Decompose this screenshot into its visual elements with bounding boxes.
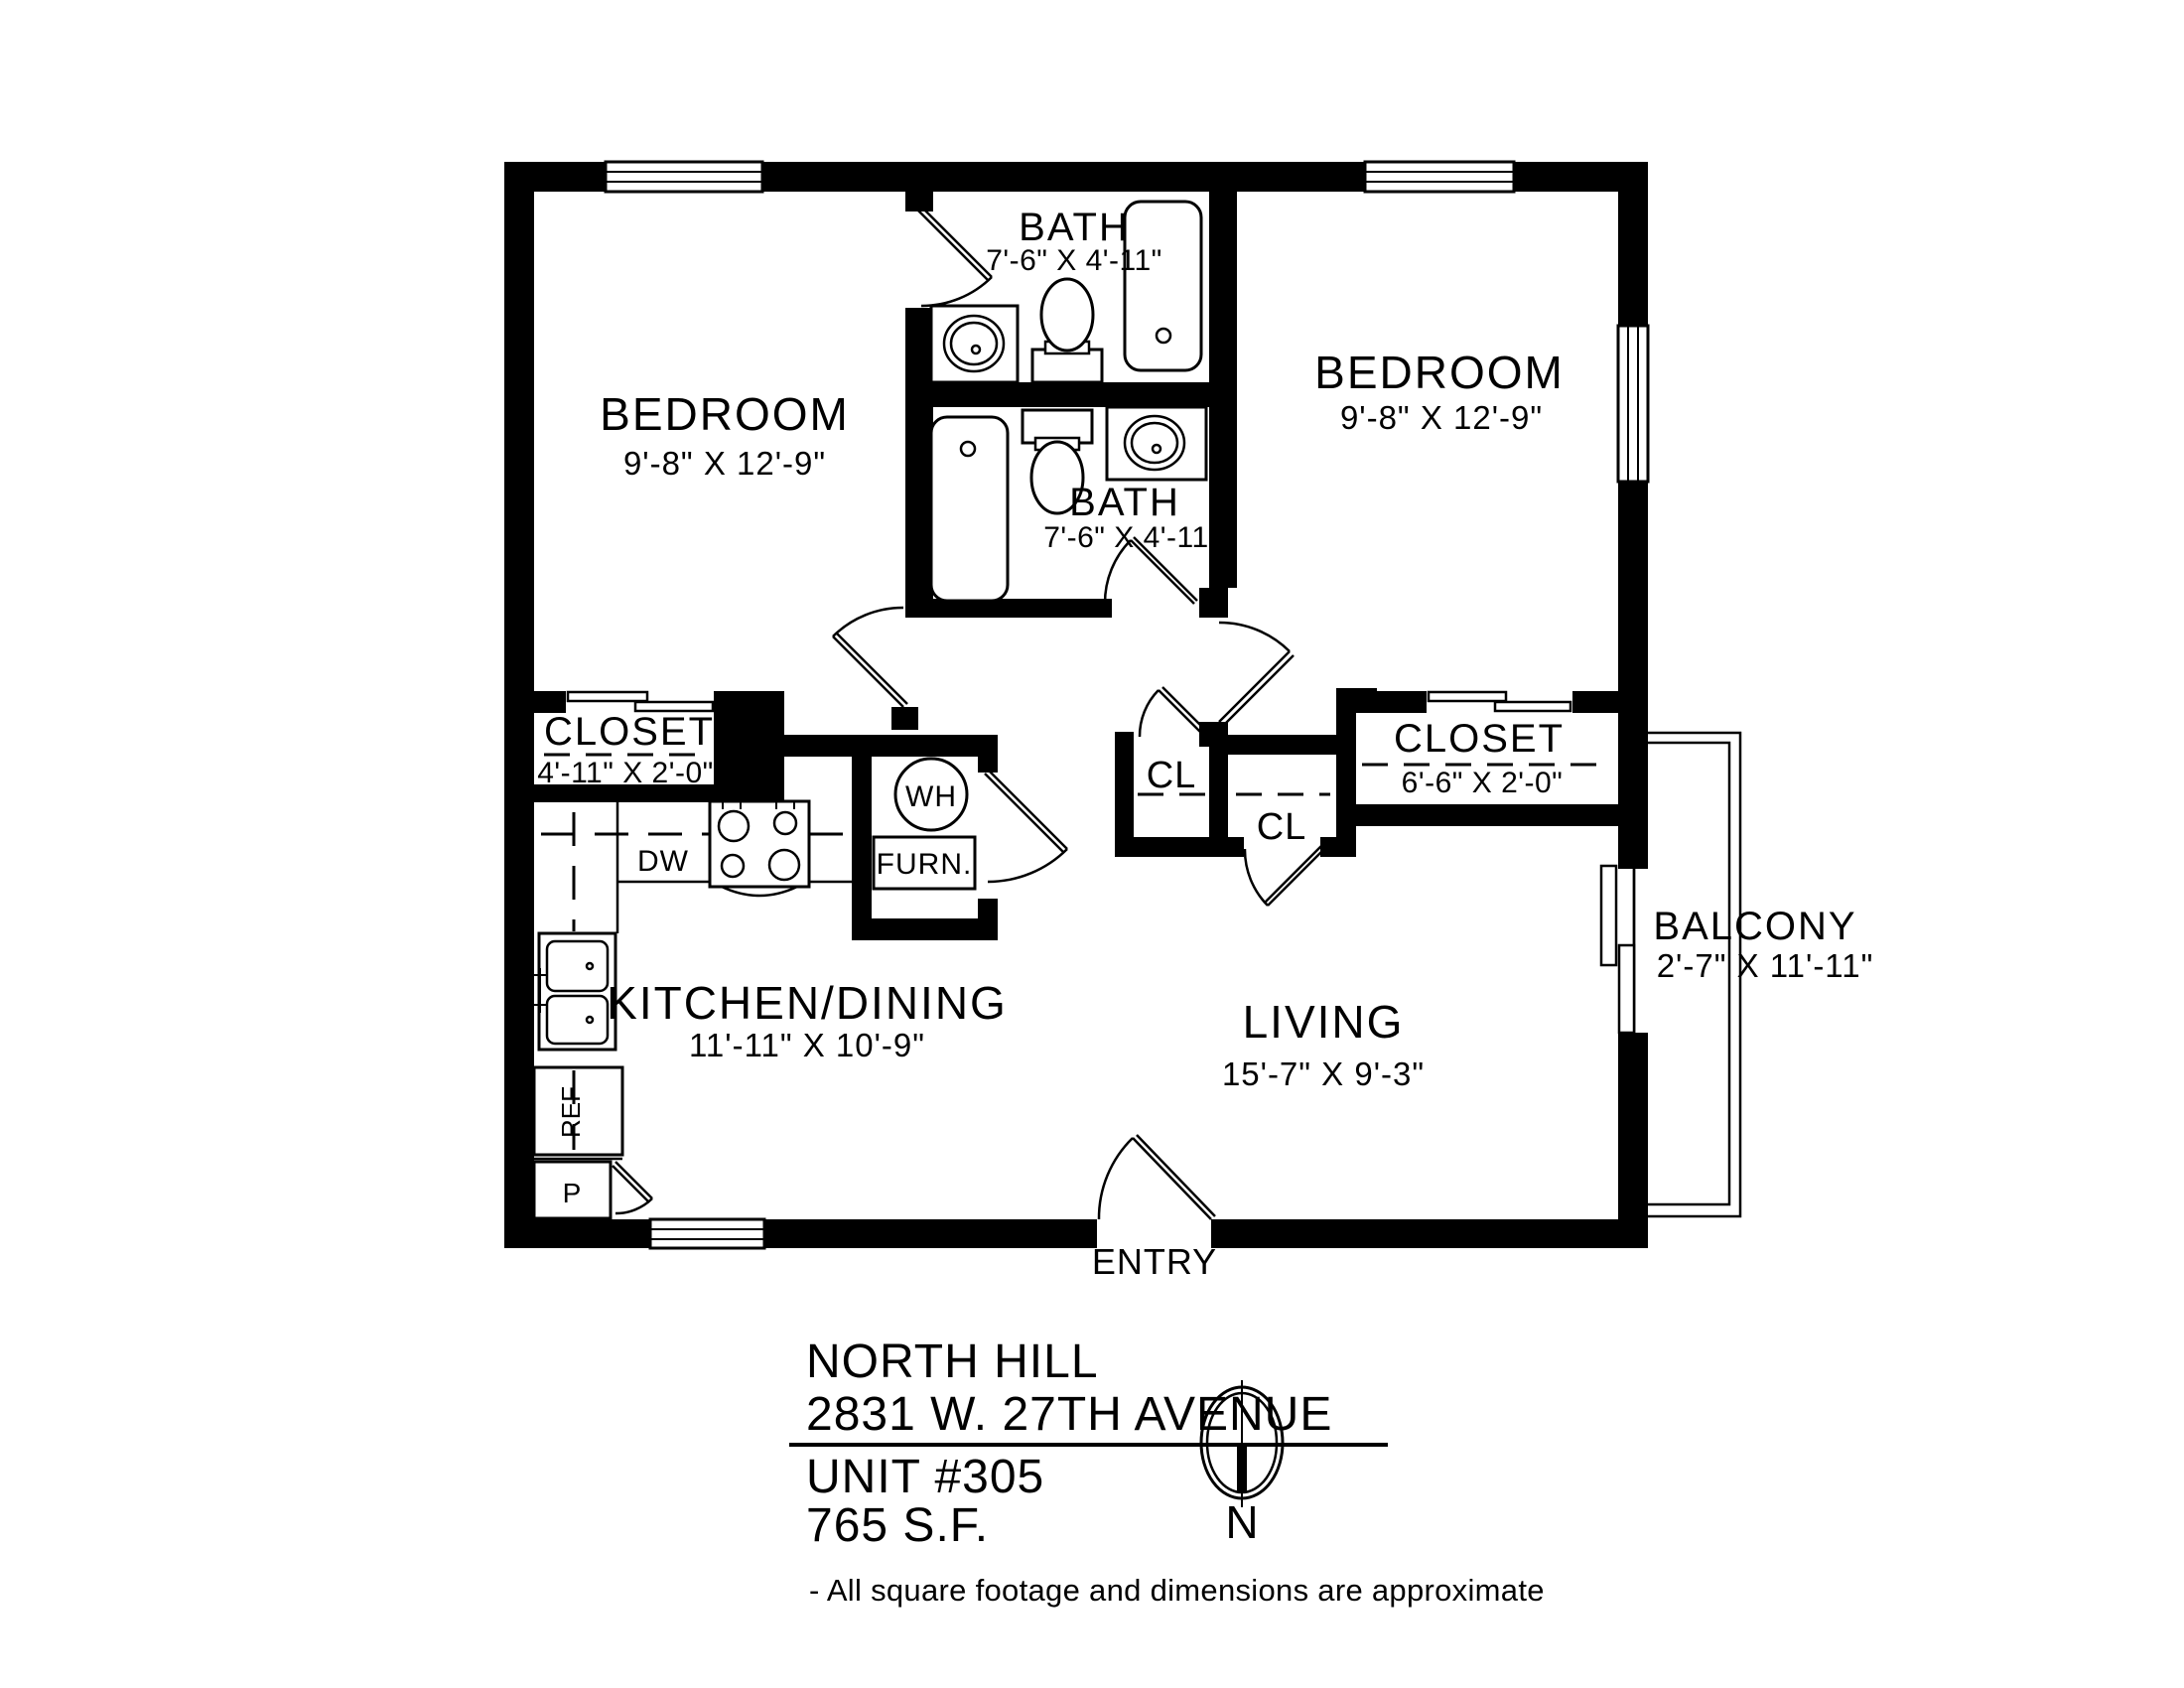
living-dims: 15'-7" X 9'-3" [1222, 1055, 1425, 1092]
bedroom-left-dims: 9'-8" X 12'-9" [623, 445, 826, 482]
toilet-icon [1032, 279, 1102, 382]
footnote: - All square footage and dimensions are … [809, 1573, 1545, 1608]
furnace-label: FURN. [877, 848, 973, 881]
cl-living-label: CL [1257, 806, 1307, 848]
bedroom-left-label: BEDROOM [600, 388, 850, 440]
window-kitchen [650, 1219, 764, 1248]
balcony-dims: 2'-7" X 11'-11" [1657, 947, 1874, 984]
window-bedroom-right [1365, 162, 1514, 192]
property-name: NORTH HILL [806, 1336, 1099, 1388]
floor-plan-page: BEDROOM 9'-8" X 12'-9" BEDROOM 9'-8" X 1… [0, 0, 2184, 1688]
title-block: NORTH HILL 2831 W. 27TH AVENUE UNIT #305… [789, 1336, 1545, 1608]
kitchen-sink-icon [534, 933, 615, 1050]
bath-bottom-label: BATH [1069, 481, 1180, 524]
balcony-label: BALCONY [1653, 905, 1856, 948]
dishwasher-label: DW [637, 845, 689, 878]
bath-top-label: BATH [1019, 206, 1130, 249]
water-heater-label: WH [905, 780, 957, 813]
bathtub-icon [1125, 202, 1201, 370]
unit-area: 765 S.F. [806, 1499, 989, 1552]
unit-number: UNIT #305 [806, 1451, 1044, 1503]
window-bedroom-left [606, 162, 762, 192]
bath-top-door [918, 207, 992, 306]
sink-icon [931, 306, 1018, 382]
pantry-label: P [563, 1178, 582, 1208]
closet-left-dims: 4'-11" X 2'-0" [537, 757, 714, 789]
entry-label: ENTRY [1092, 1241, 1217, 1282]
sink-icon [1107, 407, 1206, 480]
bath-top-dims: 7'-6" X 4'-11" [986, 244, 1162, 277]
sliding-door-closet-right [1427, 691, 1572, 713]
refrigerator-label: REF [556, 1086, 586, 1138]
bedroom-left-door [833, 608, 907, 707]
closet-right-dims: 6'-6" X 2'-0" [1402, 767, 1564, 799]
stove-icon [710, 801, 809, 896]
utility-closet-door [985, 770, 1067, 882]
kitchen-dims: 11'-11" X 10'-9" [689, 1027, 925, 1063]
compass-north-label: N [1225, 1496, 1258, 1548]
cl-hall-door [1140, 687, 1209, 737]
pantry-door [613, 1162, 652, 1213]
bath-bottom-dims: 7'-6" X 4'-11" [1043, 521, 1220, 554]
cl-living-door [1245, 846, 1324, 906]
entry-door [1099, 1135, 1215, 1219]
cl-hall-label: CL [1147, 755, 1197, 796]
balcony-sliding-door [1601, 866, 1634, 1033]
compass: N [1201, 1380, 1283, 1548]
window-bedroom-right-side [1618, 326, 1648, 482]
bathtub-icon [931, 417, 1008, 601]
compass-needle [1237, 1443, 1247, 1491]
bedroom-right-dims: 9'-8" X 12'-9" [1340, 399, 1543, 436]
bedroom-right-label: BEDROOM [1314, 347, 1565, 398]
kitchen-label: KITCHEN/DINING [607, 977, 1008, 1029]
closet-left-label: CLOSET [544, 710, 715, 754]
bedroom-right-door [1219, 623, 1294, 726]
living-label: LIVING [1243, 996, 1405, 1048]
closet-right-label: CLOSET [1394, 717, 1565, 761]
floor-plan-drawing: BEDROOM 9'-8" X 12'-9" BEDROOM 9'-8" X 1… [0, 0, 2184, 1688]
